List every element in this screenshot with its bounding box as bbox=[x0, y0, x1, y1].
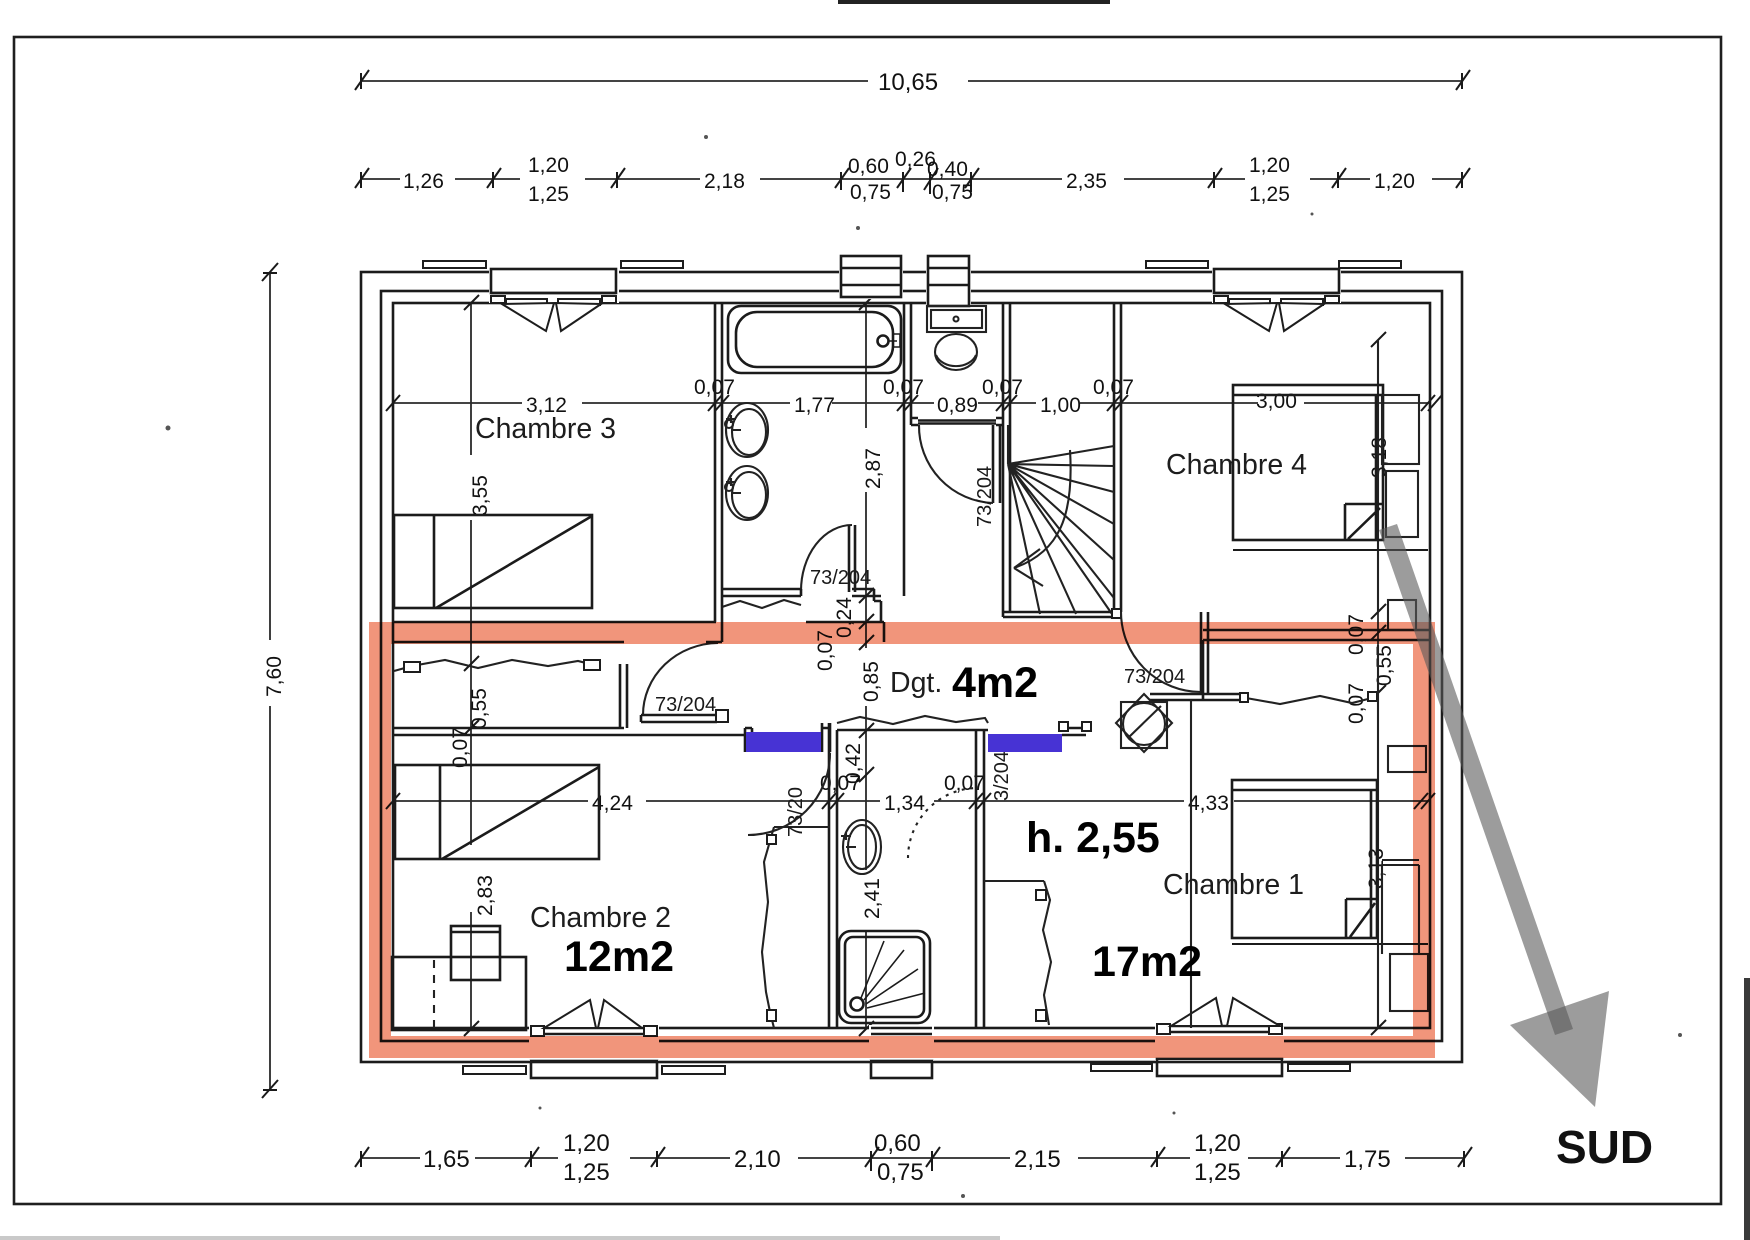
svg-text:0,40: 0,40 bbox=[927, 158, 968, 181]
svg-text:2,35: 2,35 bbox=[1066, 170, 1107, 193]
svg-text:1,20: 1,20 bbox=[1249, 154, 1290, 177]
svg-text:73/204: 73/204 bbox=[974, 466, 996, 527]
svg-text:2,83: 2,83 bbox=[474, 875, 497, 916]
svg-text:3/204: 3/204 bbox=[991, 751, 1013, 801]
svg-text:2,18: 2,18 bbox=[704, 170, 745, 193]
svg-text:1,20: 1,20 bbox=[563, 1130, 610, 1157]
svg-text:SUD: SUD bbox=[1556, 1121, 1653, 1173]
svg-text:Chambre 3: Chambre 3 bbox=[475, 413, 616, 445]
svg-text:1,34: 1,34 bbox=[884, 792, 925, 815]
svg-text:1,25: 1,25 bbox=[563, 1159, 610, 1186]
svg-text:1,25: 1,25 bbox=[528, 183, 569, 206]
svg-text:h. 2,55: h. 2,55 bbox=[1026, 814, 1160, 862]
svg-text:1,00: 1,00 bbox=[1040, 394, 1081, 417]
svg-text:Dgt.: Dgt. bbox=[890, 667, 942, 699]
svg-text:0,75: 0,75 bbox=[932, 181, 973, 204]
svg-text:7,60: 7,60 bbox=[263, 656, 286, 697]
svg-text:Chambre 1: Chambre 1 bbox=[1163, 869, 1304, 901]
svg-text:0,75: 0,75 bbox=[877, 1159, 924, 1186]
svg-text:2,10: 2,10 bbox=[734, 1146, 781, 1173]
svg-text:0,55: 0,55 bbox=[1373, 645, 1396, 686]
svg-text:12m2: 12m2 bbox=[564, 933, 674, 981]
svg-text:17m2: 17m2 bbox=[1092, 938, 1202, 986]
svg-text:1,65: 1,65 bbox=[423, 1146, 470, 1173]
svg-text:0,42: 0,42 bbox=[842, 743, 865, 784]
svg-text:1,20: 1,20 bbox=[528, 154, 569, 177]
svg-text:2,41: 2,41 bbox=[861, 878, 884, 919]
svg-text:0,60: 0,60 bbox=[874, 1130, 921, 1157]
svg-text:2,15: 2,15 bbox=[1014, 1146, 1061, 1173]
svg-text:Chambre 2: Chambre 2 bbox=[530, 902, 671, 934]
svg-text:3,55: 3,55 bbox=[469, 475, 492, 516]
svg-text:10,65: 10,65 bbox=[878, 69, 938, 96]
svg-text:1,26: 1,26 bbox=[403, 170, 444, 193]
svg-text:0,07: 0,07 bbox=[1345, 683, 1368, 724]
svg-text:0,75: 0,75 bbox=[850, 181, 891, 204]
svg-text:0,60: 0,60 bbox=[848, 155, 889, 178]
svg-text:73/20: 73/20 bbox=[785, 787, 807, 837]
svg-text:1,25: 1,25 bbox=[1194, 1159, 1241, 1186]
svg-text:0,89: 0,89 bbox=[937, 394, 978, 417]
svg-text:0,07: 0,07 bbox=[944, 772, 985, 795]
svg-text:4m2: 4m2 bbox=[952, 659, 1038, 707]
svg-text:Chambre 4: Chambre 4 bbox=[1166, 449, 1307, 481]
svg-text:1,20: 1,20 bbox=[1194, 1130, 1241, 1157]
svg-text:2,87: 2,87 bbox=[862, 448, 885, 489]
svg-text:0,85: 0,85 bbox=[860, 661, 883, 702]
svg-text:4,33: 4,33 bbox=[1188, 792, 1229, 815]
svg-text:3,00: 3,00 bbox=[1256, 390, 1297, 413]
svg-text:0,07: 0,07 bbox=[449, 727, 472, 768]
svg-text:1,25: 1,25 bbox=[1249, 183, 1290, 206]
svg-text:73/204: 73/204 bbox=[810, 567, 871, 589]
svg-text:0,55: 0,55 bbox=[468, 688, 491, 729]
svg-text:73/204: 73/204 bbox=[1124, 666, 1185, 688]
svg-text:1,20: 1,20 bbox=[1374, 170, 1415, 193]
svg-text:1,77: 1,77 bbox=[794, 394, 835, 417]
svg-text:73/204: 73/204 bbox=[655, 694, 716, 716]
svg-text:1,75: 1,75 bbox=[1344, 1146, 1391, 1173]
